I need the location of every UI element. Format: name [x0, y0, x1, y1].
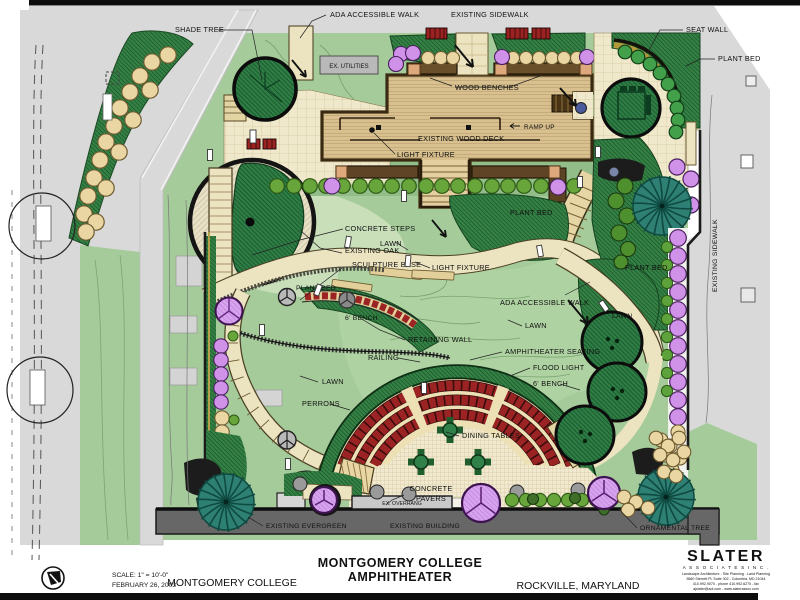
svg-text:EX. UTILITIES: EX. UTILITIES: [329, 64, 368, 70]
svg-text:Landscape Architecture - Site: Landscape Architecture - Site Planning -…: [682, 572, 770, 576]
svg-text:RAILING: RAILING: [368, 353, 399, 362]
svg-text:WOOD BENCHES: WOOD BENCHES: [455, 83, 519, 92]
svg-text:AMPHITHEATER SEATING: AMPHITHEATER SEATING: [505, 347, 600, 356]
svg-text:RAMP UP: RAMP UP: [524, 124, 555, 131]
svg-text:LIGHT FIXTURE: LIGHT FIXTURE: [432, 263, 490, 272]
svg-text:EXISTING OAK: EXISTING OAK: [345, 246, 400, 255]
svg-text:A S S O C I A T E S I N C .: A S S O C I A T E S I N C .: [683, 565, 770, 570]
svg-text:SHADE TREE: SHADE TREE: [175, 25, 224, 34]
svg-text:DINING TABLES: DINING TABLES: [462, 431, 520, 440]
svg-text:LAWN: LAWN: [612, 313, 632, 320]
svg-text:CONCRETE STEPS: CONCRETE STEPS: [345, 224, 415, 233]
svg-text:LIGHT FIXTURE: LIGHT FIXTURE: [397, 150, 455, 159]
svg-text:410.992.9070 - phone 410.992: 410.992.9070 - phone 410.992.6270 - fax: [693, 582, 759, 586]
svg-text:PERRONS: PERRONS: [302, 399, 340, 408]
svg-text:ADA ACCESSIBLE WALK: ADA ACCESSIBLE WALK: [500, 298, 589, 307]
svg-text:PLANT BED: PLANT BED: [510, 208, 553, 217]
svg-text:EXISTING SIDEWALK: EXISTING SIDEWALK: [712, 219, 719, 292]
svg-text:SCALE: 1" = 10'-0": SCALE: 1" = 10'-0": [112, 572, 169, 579]
svg-text:RETAINING WALL: RETAINING WALL: [408, 335, 472, 344]
svg-text:ORNAMENTAL TREE: ORNAMENTAL TREE: [640, 525, 710, 532]
svg-text:EXISTING WOOD DECK: EXISTING WOOD DECK: [418, 134, 504, 143]
svg-text:EXISTING SIDEWALK: EXISTING SIDEWALK: [451, 10, 529, 19]
svg-text:CONCRETE: CONCRETE: [410, 484, 453, 493]
svg-text:5560 Sterrett Pl. Suite 302 -: 5560 Sterrett Pl. Suite 302 - Columbia, …: [686, 577, 765, 581]
svg-text:LAWN: LAWN: [322, 377, 344, 386]
svg-text:AMPHITHEATER: AMPHITHEATER: [348, 570, 452, 584]
svg-text:ADA ACCESSIBLE WALK: ADA ACCESSIBLE WALK: [330, 10, 419, 19]
svg-text:ajslater@aol.com - www.slate: ajslater@aol.com - www.slaterassoc.com: [693, 587, 759, 591]
svg-text:ROCKVILLE, MARYLAND: ROCKVILLE, MARYLAND: [517, 580, 640, 592]
svg-text:FLOOD LIGHT: FLOOD LIGHT: [533, 363, 585, 372]
svg-text:MONTGOMERY COLLEGE: MONTGOMERY COLLEGE: [167, 577, 297, 589]
svg-text:MONTGOMERY COLLEGE: MONTGOMERY COLLEGE: [318, 556, 483, 570]
svg-text:SEAT WALL: SEAT WALL: [686, 25, 728, 34]
svg-text:SLATER: SLATER: [687, 548, 765, 565]
svg-text:LAWN: LAWN: [525, 321, 547, 330]
svg-text:PAVERS: PAVERS: [416, 494, 446, 503]
svg-text:EXISTING EVERGREEN: EXISTING EVERGREEN: [266, 523, 347, 530]
svg-text:PLANT BED: PLANT BED: [718, 54, 761, 63]
svg-text:PLANT BED: PLANT BED: [625, 263, 668, 272]
svg-text:EXISTING BUILDING: EXISTING BUILDING: [390, 523, 460, 530]
svg-text:6' BENCH: 6' BENCH: [533, 379, 568, 388]
